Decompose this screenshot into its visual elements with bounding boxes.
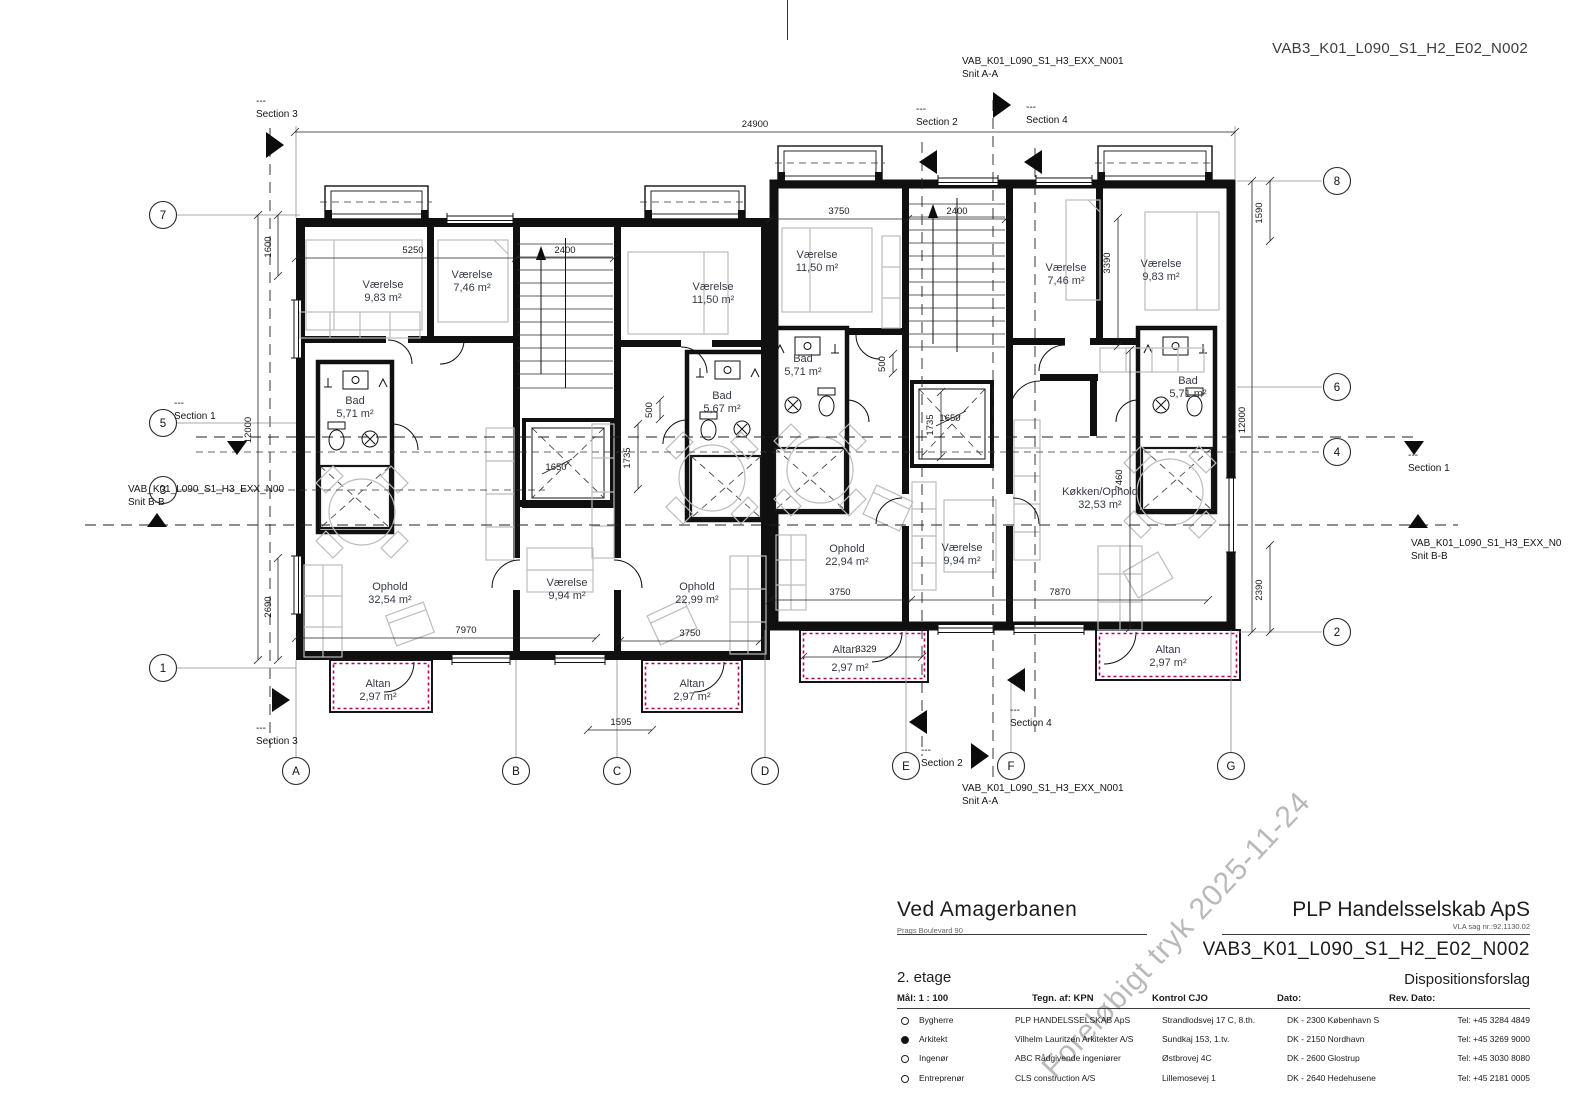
arkitekt-marker-icon — [901, 1036, 909, 1044]
divider — [1222, 934, 1530, 935]
svg-text:---: --- — [1010, 705, 1020, 716]
svg-text:2,97 m²: 2,97 m² — [831, 662, 869, 674]
bygherre-marker-icon — [901, 1017, 909, 1025]
grid-bubble-label: D — [761, 766, 769, 778]
svg-text:2,97 m²: 2,97 m² — [673, 691, 711, 703]
svg-text:22,99 m²: 22,99 m² — [675, 594, 719, 606]
svg-text:Section 3: Section 3 — [256, 736, 298, 747]
svg-text:---: --- — [916, 104, 926, 115]
svg-text:---: --- — [1408, 450, 1418, 461]
party-address: Lillemosevej 1 — [1162, 1073, 1216, 1083]
svg-text:12000: 12000 — [243, 417, 254, 443]
grid-bubble-label: C — [613, 766, 621, 778]
svg-text:---: --- — [921, 745, 931, 756]
grid-bubble-label: B — [512, 766, 520, 778]
grid-bubble-label: 8 — [1334, 176, 1340, 188]
drawn-by-label: Tegn. af: KPN — [1032, 993, 1094, 1004]
grid-bubble-label: 2 — [1334, 627, 1340, 639]
date-label: Dato: — [1277, 993, 1301, 1004]
svg-text:3750: 3750 — [829, 587, 850, 598]
svg-text:Section 4: Section 4 — [1010, 718, 1052, 729]
svg-text:VAB_K01_L090_S1_H3_EXX_N00: VAB_K01_L090_S1_H3_EXX_N00 — [128, 484, 284, 495]
svg-text:Ophold: Ophold — [829, 543, 864, 555]
svg-text:2390: 2390 — [1254, 579, 1265, 600]
grid-bubble-label: F — [1007, 761, 1014, 773]
grid-bubble-label: 6 — [1334, 382, 1340, 394]
svg-text:Section 4: Section 4 — [1026, 115, 1068, 126]
svg-text:9,83 m²: 9,83 m² — [1142, 271, 1180, 283]
svg-text:7,46 m²: 7,46 m² — [1047, 275, 1085, 287]
svg-text:Ophold: Ophold — [679, 581, 714, 593]
svg-text:2,97 m²: 2,97 m² — [359, 691, 397, 703]
svg-text:1595: 1595 — [610, 717, 631, 728]
svg-text:1590: 1590 — [1254, 202, 1265, 223]
party-role: Entreprenør — [919, 1073, 964, 1083]
party-city: DK - 2300 København S — [1287, 1015, 1379, 1025]
svg-text:Snit B-B: Snit B-B — [1411, 551, 1448, 562]
svg-text:Altan: Altan — [832, 644, 857, 656]
svg-text:Bad: Bad — [712, 390, 732, 402]
svg-text:---: --- — [256, 723, 266, 734]
party-company: Vilhelm Lauritzen Arkitekter A/S — [1015, 1034, 1133, 1044]
grid-bubble-label: E — [902, 761, 910, 773]
svg-text:9,83 m²: 9,83 m² — [364, 292, 402, 304]
party-phone: Tel: +45 3030 8080 — [1457, 1053, 1530, 1063]
project-name: Ved Amagerbanen — [897, 898, 1077, 922]
grid-bubble-label: 5 — [160, 418, 166, 430]
party-phone: Tel: +45 2181 0005 — [1457, 1073, 1530, 1083]
grid-bubble-label: 4 — [1334, 447, 1341, 459]
divider — [897, 1008, 1530, 1009]
rev-date-label: Rev. Dato: — [1389, 993, 1435, 1004]
party-role: Bygherre — [919, 1015, 954, 1025]
svg-text:7970: 7970 — [455, 625, 476, 636]
client-name: PLP Handelsselskab ApS — [1292, 898, 1530, 922]
svg-text:11,50 m²: 11,50 m² — [692, 294, 735, 306]
grid-bubble-label: 7 — [160, 210, 166, 222]
svg-text:Værelse: Værelse — [693, 281, 734, 293]
ingenor-marker-icon — [901, 1055, 909, 1063]
svg-text:VAB_K01_L090_S1_H3_EXX_N001: VAB_K01_L090_S1_H3_EXX_N001 — [962, 783, 1124, 794]
party-company: PLP HANDELSSELSKAB ApS — [1015, 1015, 1130, 1025]
svg-text:3750: 3750 — [828, 206, 849, 217]
grid-bubble-label: A — [292, 766, 300, 778]
svg-text:7870: 7870 — [1049, 587, 1070, 598]
svg-text:5,71 m²: 5,71 m² — [1169, 388, 1207, 400]
svg-text:Køkken/Ophold: Køkken/Ophold — [1062, 486, 1138, 498]
divider — [897, 934, 1147, 935]
svg-text:VAB_K01_L090_S1_H3_EXX_N0: VAB_K01_L090_S1_H3_EXX_N0 — [1411, 538, 1562, 549]
grid-bubble-label: 1 — [160, 663, 166, 675]
floor-label: 2. etage — [897, 969, 951, 986]
svg-text:Section 1: Section 1 — [1408, 463, 1450, 474]
party-role: Arkitekt — [919, 1034, 947, 1044]
svg-text:Ophold: Ophold — [372, 581, 407, 593]
svg-text:Section 1: Section 1 — [174, 411, 216, 422]
svg-text:5,71 m²: 5,71 m² — [784, 366, 822, 378]
phase-label: Dispositionsforslag — [1404, 971, 1530, 988]
drawing-sheet: { "page": { "code_top_right": "VAB3_K01_… — [0, 0, 1578, 1115]
svg-text:12000: 12000 — [1237, 407, 1248, 433]
case-number: VLA sag nr.:92.1130.02 — [1453, 922, 1530, 931]
svg-text:5,67 m²: 5,67 m² — [703, 403, 741, 415]
svg-text:Bad: Bad — [345, 395, 365, 407]
svg-text:Altan: Altan — [679, 678, 704, 690]
svg-text:1735: 1735 — [622, 447, 633, 468]
svg-text:9,94 m²: 9,94 m² — [548, 590, 586, 602]
drawing-number: VAB3_K01_L090_S1_H2_E02_N002 — [1203, 939, 1530, 961]
svg-text:9,94 m²: 9,94 m² — [943, 555, 981, 567]
svg-text:1735: 1735 — [925, 414, 936, 435]
svg-text:Værelse: Værelse — [1046, 262, 1087, 274]
svg-text:Section 3: Section 3 — [256, 109, 298, 120]
grid-bubble-label: G — [1227, 761, 1236, 773]
party-address: Østbrovej 4C — [1162, 1053, 1212, 1063]
party-company: CLS construction A/S — [1015, 1073, 1095, 1083]
svg-text:Værelse: Værelse — [363, 279, 404, 291]
svg-text:7,46 m²: 7,46 m² — [453, 282, 491, 294]
svg-text:2690: 2690 — [263, 596, 274, 617]
svg-text:Snit B-B: Snit B-B — [128, 497, 165, 508]
party-role: Ingenør — [919, 1053, 948, 1063]
entreprenor-marker-icon — [901, 1075, 909, 1083]
svg-text:11,50 m²: 11,50 m² — [796, 262, 839, 274]
svg-text:Altan: Altan — [1155, 644, 1180, 656]
svg-text:Værelse: Værelse — [1141, 258, 1182, 270]
svg-text:Altan: Altan — [365, 678, 390, 690]
svg-text:Værelse: Værelse — [547, 577, 588, 589]
svg-text:Snit A-A: Snit A-A — [962, 69, 998, 80]
svg-text:---: --- — [256, 96, 266, 107]
party-city: DK - 2600 Glostrup — [1287, 1053, 1360, 1063]
svg-text:2,97 m²: 2,97 m² — [1149, 657, 1187, 669]
party-address: Strandlodsvej 17 C, 8.th. — [1162, 1015, 1255, 1025]
svg-text:---: --- — [174, 398, 184, 409]
svg-text:3329: 3329 — [855, 644, 876, 655]
svg-text:32,54 m²: 32,54 m² — [368, 594, 412, 606]
svg-text:24900: 24900 — [742, 119, 768, 130]
svg-text:Værelse: Værelse — [797, 249, 838, 261]
svg-text:32,53 m²: 32,53 m² — [1078, 499, 1122, 511]
party-address: Sundkaj 153, 1.tv. — [1162, 1034, 1229, 1044]
party-phone: Tel: +45 3269 9000 — [1457, 1034, 1530, 1044]
svg-text:Værelse: Værelse — [452, 269, 493, 281]
scale-label: Mål: 1 : 100 — [897, 993, 948, 1004]
svg-text:22,94 m²: 22,94 m² — [825, 556, 869, 568]
party-city: DK - 2640 Hedehusene — [1287, 1073, 1376, 1083]
title-block: Ved Amagerbanen Prags Boulevard 90 PLP H… — [897, 893, 1530, 1103]
svg-text:3750: 3750 — [679, 628, 700, 639]
svg-text:Bad: Bad — [793, 353, 813, 365]
svg-text:1600: 1600 — [263, 236, 274, 257]
svg-text:5250: 5250 — [402, 245, 423, 256]
party-phone: Tel: +45 3284 4849 — [1457, 1015, 1530, 1025]
control-label: Kontrol CJO — [1152, 993, 1208, 1004]
svg-text:2400: 2400 — [946, 206, 967, 217]
svg-text:---: --- — [1026, 102, 1036, 113]
svg-text:Bad: Bad — [1178, 375, 1198, 387]
svg-text:500: 500 — [877, 356, 888, 372]
svg-text:500: 500 — [644, 402, 655, 418]
party-city: DK - 2150 Nordhavn — [1287, 1034, 1365, 1044]
svg-text:VAB_K01_L090_S1_H3_EXX_N001: VAB_K01_L090_S1_H3_EXX_N001 — [962, 56, 1124, 67]
svg-text:5,71 m²: 5,71 m² — [336, 408, 374, 420]
svg-text:Snit A-A: Snit A-A — [962, 796, 998, 807]
svg-text:Section 2: Section 2 — [916, 117, 958, 128]
party-company: ABC Rådgivende ingeniører — [1015, 1053, 1121, 1063]
svg-text:2400: 2400 — [554, 245, 575, 256]
svg-text:Værelse: Værelse — [942, 542, 983, 554]
svg-text:Section 2: Section 2 — [921, 758, 963, 769]
svg-text:3390: 3390 — [1102, 252, 1113, 273]
